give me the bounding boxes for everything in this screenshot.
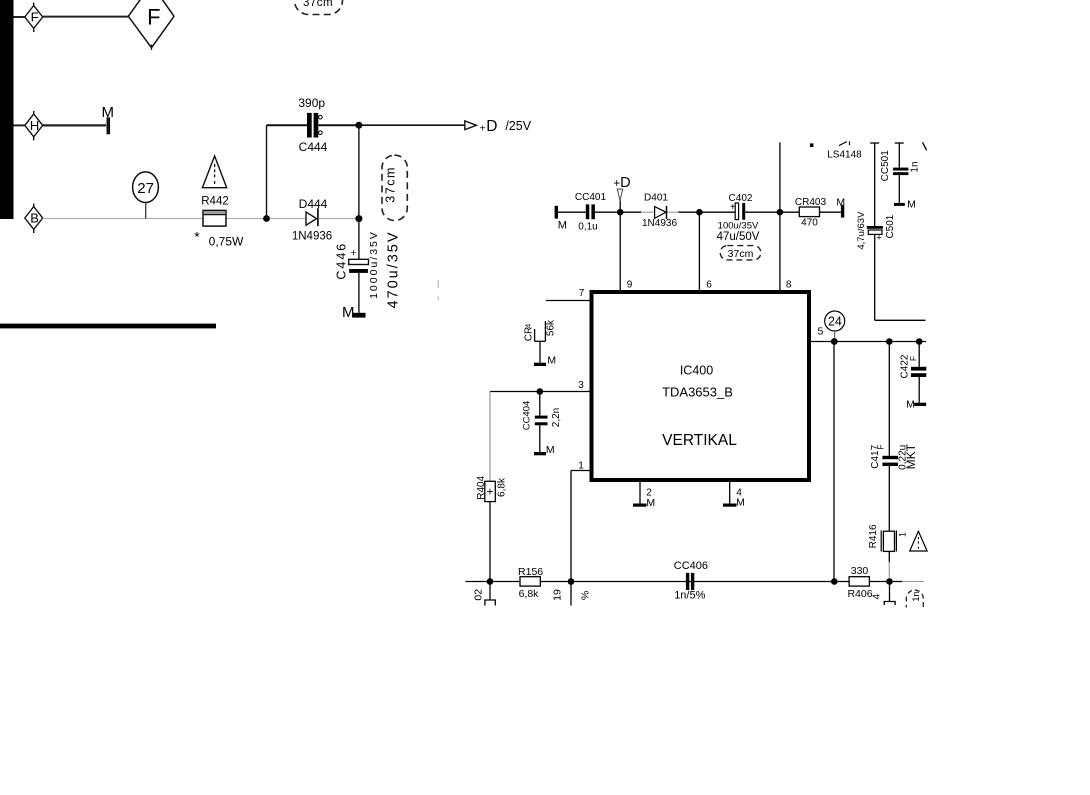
svg-text:37cm: 37cm [384,166,398,203]
svg-text:0,1u: 0,1u [578,222,597,233]
svg-text:100u/35V: 100u/35V [718,220,759,231]
svg-text:6: 6 [706,280,712,291]
svg-text:4: 4 [524,324,533,328]
svg-text:37cm: 37cm [728,248,754,260]
svg-text:56k: 56k [545,319,556,336]
svg-text:M: M [546,444,555,456]
svg-text:9: 9 [627,280,633,291]
svg-text:390p: 390p [298,96,325,110]
svg-text:M: M [558,220,567,232]
svg-text:M: M [736,497,745,509]
svg-text:1: 1 [898,532,908,537]
svg-text:*: * [194,229,200,245]
svg-text:2,2n: 2,2n [551,408,562,427]
svg-text:D444: D444 [299,197,328,211]
svg-text:R404: R404 [476,475,487,499]
svg-text:M: M [342,304,355,321]
svg-text:7: 7 [579,288,585,299]
svg-text:330: 330 [851,565,869,577]
svg-text:MKT: MKT [904,443,918,469]
svg-text:/25V: /25V [505,119,531,133]
svg-text:1n/5%: 1n/5% [674,590,705,602]
svg-text:R416: R416 [868,524,879,548]
svg-text:4,7u/63V: 4,7u/63V [856,211,867,250]
svg-text:F: F [31,10,39,25]
svg-text:B: B [30,211,39,226]
svg-text:C444: C444 [299,140,328,154]
svg-text:VERTIKAL: VERTIKAL [662,432,737,449]
svg-text:470u/35V: 470u/35V [386,230,402,308]
svg-text:470: 470 [801,217,818,228]
svg-text:M: M [907,199,916,211]
svg-text:24: 24 [828,315,842,329]
svg-text:CC501: CC501 [880,150,891,182]
svg-text:D401: D401 [644,193,668,204]
svg-text:M: M [547,355,556,367]
svg-text:IC400: IC400 [680,363,713,377]
svg-text:47u/50V: 47u/50V [717,231,760,243]
svg-text:R406: R406 [847,588,872,600]
svg-text:LS4148: LS4148 [827,150,862,161]
svg-text:M: M [646,497,655,509]
svg-text:CC406: CC406 [674,560,708,572]
svg-text:CC404: CC404 [522,401,533,431]
svg-text:1n: 1n [911,591,922,602]
svg-text:D: D [486,118,497,135]
svg-text:F: F [147,5,160,30]
svg-text:1N4936: 1N4936 [642,218,677,229]
svg-text:+: + [486,485,493,499]
svg-text:5: 5 [817,325,823,337]
svg-text:4: 4 [872,593,883,599]
svg-text:02: 02 [473,589,485,601]
svg-text:+: + [480,124,486,135]
svg-text:3: 3 [578,380,584,391]
svg-text:R156: R156 [518,566,543,578]
svg-text:C501: C501 [885,214,896,238]
svg-text:+: + [876,233,882,244]
svg-text:+: + [350,247,356,259]
svg-text:TDA3653_B: TDA3653_B [662,384,733,399]
svg-text:M: M [836,197,845,209]
svg-text:1N4936: 1N4936 [292,231,332,243]
svg-text:27: 27 [137,180,154,197]
svg-text:8: 8 [786,280,792,291]
svg-text:37cm: 37cm [303,0,333,9]
svg-text:M: M [906,399,915,411]
svg-text:F: F [908,356,918,361]
svg-text:R442: R442 [201,196,229,208]
svg-text:6,8k: 6,8k [496,477,507,497]
svg-text:1000u/35V: 1000u/35V [368,230,380,299]
svg-text:0,75W: 0,75W [209,235,244,249]
svg-text:CC401: CC401 [575,192,607,203]
svg-text:M: M [102,104,115,121]
svg-text:1n: 1n [910,161,921,172]
svg-text:6,8k: 6,8k [519,588,540,600]
svg-text:%: % [579,591,591,600]
svg-text:19: 19 [552,589,564,601]
svg-text:H: H [30,118,39,133]
svg-text:F: F [876,444,886,449]
svg-text:C446: C446 [335,242,349,280]
